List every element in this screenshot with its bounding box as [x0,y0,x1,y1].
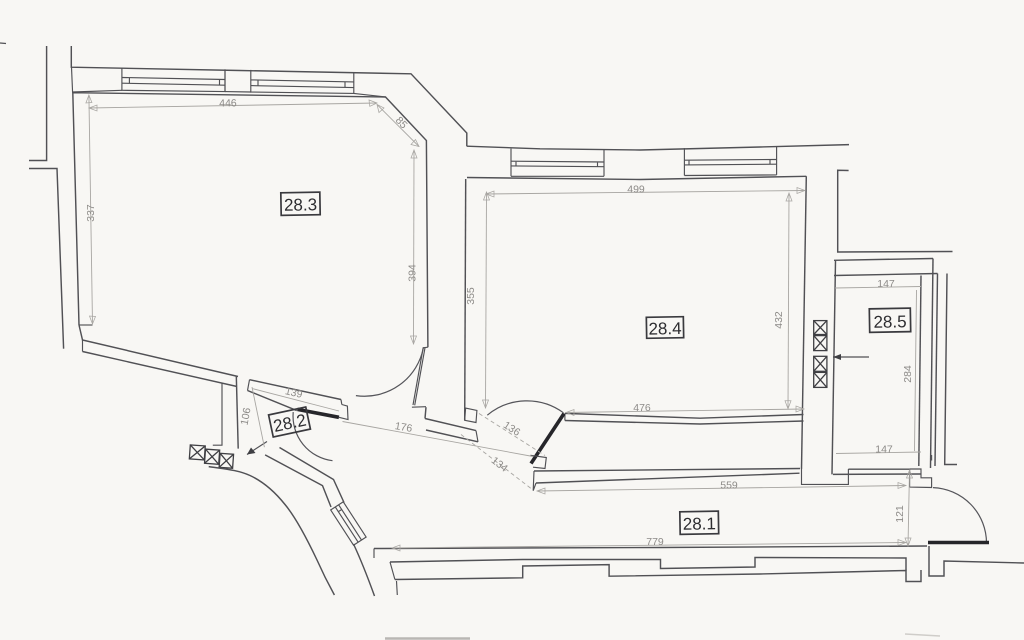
svg-text:121: 121 [894,505,906,523]
svg-text:147: 147 [877,278,895,290]
svg-text:28.1: 28.1 [683,514,716,534]
svg-text:337: 337 [85,204,97,222]
svg-text:476: 476 [633,402,651,414]
svg-text:355: 355 [465,287,477,305]
svg-text:28.4: 28.4 [648,319,681,339]
svg-text:559: 559 [720,480,738,492]
svg-text:779: 779 [646,536,664,548]
svg-text:432: 432 [773,311,785,329]
svg-text:284: 284 [902,365,914,383]
svg-text:28.3: 28.3 [284,195,317,215]
svg-text:394: 394 [407,264,419,282]
svg-text:446: 446 [219,97,237,109]
svg-text:147: 147 [875,444,893,456]
svg-text:499: 499 [627,184,645,196]
svg-text:28.5: 28.5 [873,312,906,332]
